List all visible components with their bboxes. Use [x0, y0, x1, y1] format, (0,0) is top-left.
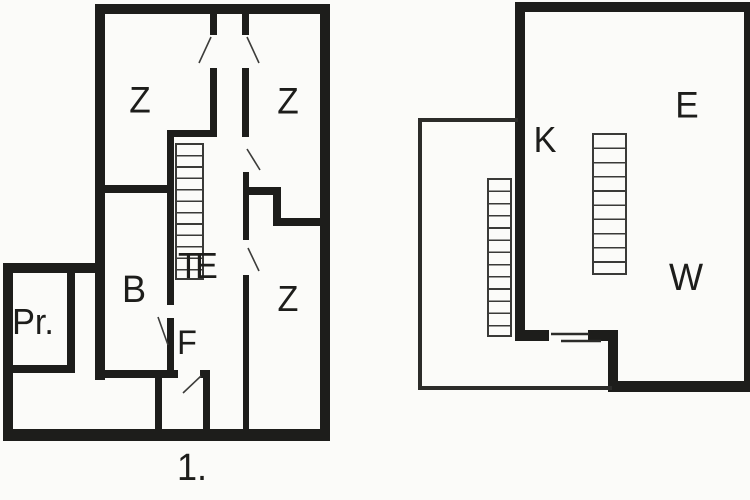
- wall-r-top: [515, 2, 750, 12]
- wall-r-bottom-seg1: [515, 330, 549, 341]
- room-label-pr: Pr.: [12, 304, 54, 340]
- staircase-right-plan: [592, 133, 627, 275]
- wall-vestibule-left: [155, 378, 162, 429]
- door-swing-line: [183, 376, 201, 393]
- wall-a-stub: [210, 14, 217, 35]
- wall-b-upper: [167, 130, 174, 305]
- wall-c-seg2: [243, 172, 249, 240]
- room-label-z-top-right: Z: [277, 83, 298, 120]
- room-label-k: K: [534, 122, 557, 158]
- wall-r-right: [744, 2, 750, 392]
- wall-protrusion-left: [3, 263, 13, 441]
- wall-annex-top: [418, 118, 518, 122]
- wall-annex-bottom: [418, 386, 612, 390]
- wall-c-seg1: [242, 68, 249, 137]
- room-label-f: F: [177, 326, 197, 360]
- room-label-z-bottom-right: Z: [278, 281, 299, 317]
- room-label-te: TE: [178, 248, 214, 284]
- wall-vestibule-right: [203, 370, 210, 429]
- wall-c-seg3: [243, 275, 249, 429]
- door-swing-line: [247, 37, 259, 63]
- wall-a-jog: [167, 130, 217, 137]
- room-label-w: W: [669, 259, 703, 297]
- wall-bottom: [3, 429, 330, 441]
- wall-pr-right: [67, 273, 75, 373]
- wall-right: [320, 4, 330, 441]
- wall-c-stub: [242, 14, 249, 35]
- door-swing-line: [247, 149, 260, 170]
- wall-zbr-top2: [273, 218, 320, 226]
- wall-r-bottom-ext: [608, 381, 750, 392]
- floorplan-canvas: Z Z TE B Pr. F Z 1. K E W: [0, 0, 750, 500]
- wall-annex-left: [418, 118, 422, 390]
- wall-r-left: [515, 2, 525, 341]
- door-swing-line: [248, 248, 259, 271]
- wall-b-lower: [167, 318, 174, 378]
- wall-broom-bottom: [95, 370, 178, 378]
- floor-number-label: 1.: [177, 449, 207, 487]
- room-label-z-top-left: Z: [129, 82, 150, 119]
- staircase-annex: [487, 178, 512, 337]
- door-swing-line: [199, 37, 211, 63]
- door-swing-overlay: [0, 0, 750, 500]
- wall-pr-bottom: [3, 365, 75, 373]
- wall-protrusion-top: [3, 263, 95, 273]
- wall-a-main: [210, 68, 217, 137]
- wall-top: [95, 4, 330, 14]
- room-label-e: E: [675, 87, 698, 124]
- room-label-b: B: [122, 271, 146, 309]
- wall-zleft-bottom: [95, 185, 167, 193]
